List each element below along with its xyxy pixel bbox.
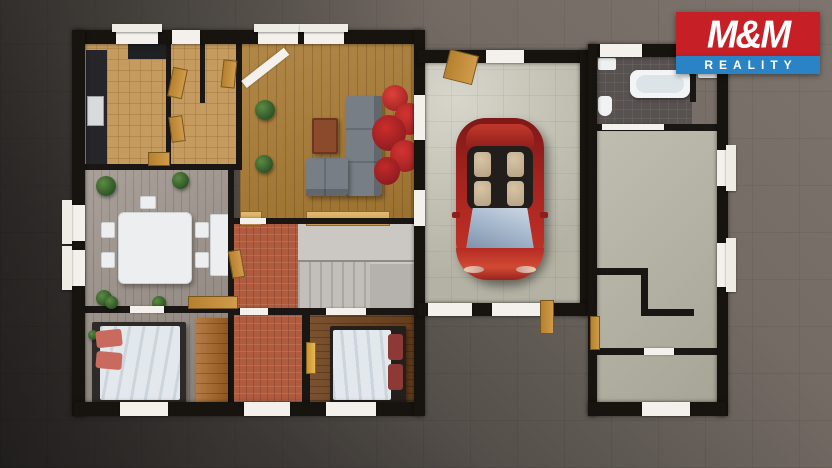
dining-chair: [195, 222, 209, 238]
stair-edge: [298, 260, 415, 262]
car-mirror: [452, 212, 460, 218]
window: [172, 30, 200, 44]
potted-plant: [105, 296, 118, 309]
logo-title: M&M: [707, 15, 789, 54]
car-cabin: [467, 146, 533, 210]
dining-chair: [101, 252, 115, 268]
door-garage-rear: [540, 300, 554, 334]
doorway: [130, 306, 164, 313]
stove-oven: [87, 96, 104, 126]
washbasin: [598, 58, 616, 70]
window-sill: [300, 24, 348, 32]
window: [72, 250, 85, 286]
car-headlight: [464, 266, 484, 273]
window: [120, 402, 168, 416]
car-windshield: [466, 208, 534, 250]
toilet: [598, 96, 612, 116]
window-sill: [62, 200, 72, 244]
pillow: [388, 334, 403, 360]
door-hall: [221, 59, 238, 88]
sideboard: [210, 214, 230, 276]
wardrobe: [196, 318, 228, 404]
utility-room-floor: [596, 128, 718, 404]
car-headlight: [516, 266, 536, 273]
stair-lower-landing: [370, 264, 415, 312]
pillow: [388, 364, 403, 390]
dining-chair: [140, 196, 156, 209]
doorway: [414, 190, 425, 226]
doorway: [644, 348, 674, 355]
dining-table: [118, 212, 192, 284]
pillow: [95, 351, 122, 370]
potted-plant: [255, 155, 273, 173]
interior-wall: [641, 309, 694, 316]
doorway: [240, 308, 268, 315]
stair-steps: [298, 262, 370, 310]
sofa-chaise: [306, 158, 348, 196]
doorway: [326, 308, 366, 315]
logo-red-box: M&M: [676, 12, 820, 56]
window: [326, 402, 376, 416]
car-hood: [456, 248, 544, 280]
window-sill: [726, 145, 736, 191]
potted-plant: [172, 172, 189, 189]
kitchen-upper-counter: [128, 44, 170, 59]
window-sill: [112, 24, 162, 32]
car-seat: [474, 181, 491, 206]
garage-cap: [492, 303, 542, 316]
car-seat: [507, 181, 524, 206]
window: [258, 30, 298, 44]
dining-chair: [101, 222, 115, 238]
window-sill: [62, 246, 72, 290]
logo-blue-bar: REALITY: [676, 56, 820, 74]
pillow: [95, 329, 123, 349]
window: [116, 30, 158, 44]
bathtub: [630, 70, 690, 98]
right-block-wall-left: [588, 44, 597, 416]
potted-plant: [255, 100, 275, 120]
car-seat: [474, 152, 491, 177]
wooden-bench: [188, 296, 238, 309]
red-convertible-car: [452, 116, 548, 282]
coffee-table: [312, 118, 338, 154]
interior-wall: [200, 43, 205, 103]
potted-plant: [96, 176, 116, 196]
kitchen-floor: [85, 43, 240, 170]
doorway: [240, 218, 266, 224]
hallway-floor-lower: [232, 312, 302, 408]
window: [642, 402, 690, 416]
car-mirror: [540, 212, 548, 218]
window-sill: [254, 24, 302, 32]
duvet: [333, 330, 391, 400]
right-block-wall-right: [717, 44, 728, 416]
doorway: [602, 124, 664, 130]
window-sill: [726, 238, 736, 292]
door-utility: [590, 316, 600, 350]
door-dining: [148, 152, 170, 166]
interior-wall: [228, 170, 234, 412]
window: [304, 30, 344, 44]
garage-door-top: [486, 50, 524, 63]
dining-chair: [195, 252, 209, 268]
mm-reality-logo: M&M REALITY: [676, 12, 820, 74]
car-seat: [507, 152, 524, 177]
garage-cap: [428, 303, 472, 316]
window: [72, 205, 85, 241]
floorplan-render: M&M REALITY: [0, 0, 832, 468]
window: [244, 402, 290, 416]
doorway: [414, 95, 425, 140]
door-bedroom: [306, 342, 316, 374]
interior-wall: [166, 43, 171, 170]
logo-subtitle: REALITY: [698, 59, 797, 71]
window: [600, 44, 642, 57]
